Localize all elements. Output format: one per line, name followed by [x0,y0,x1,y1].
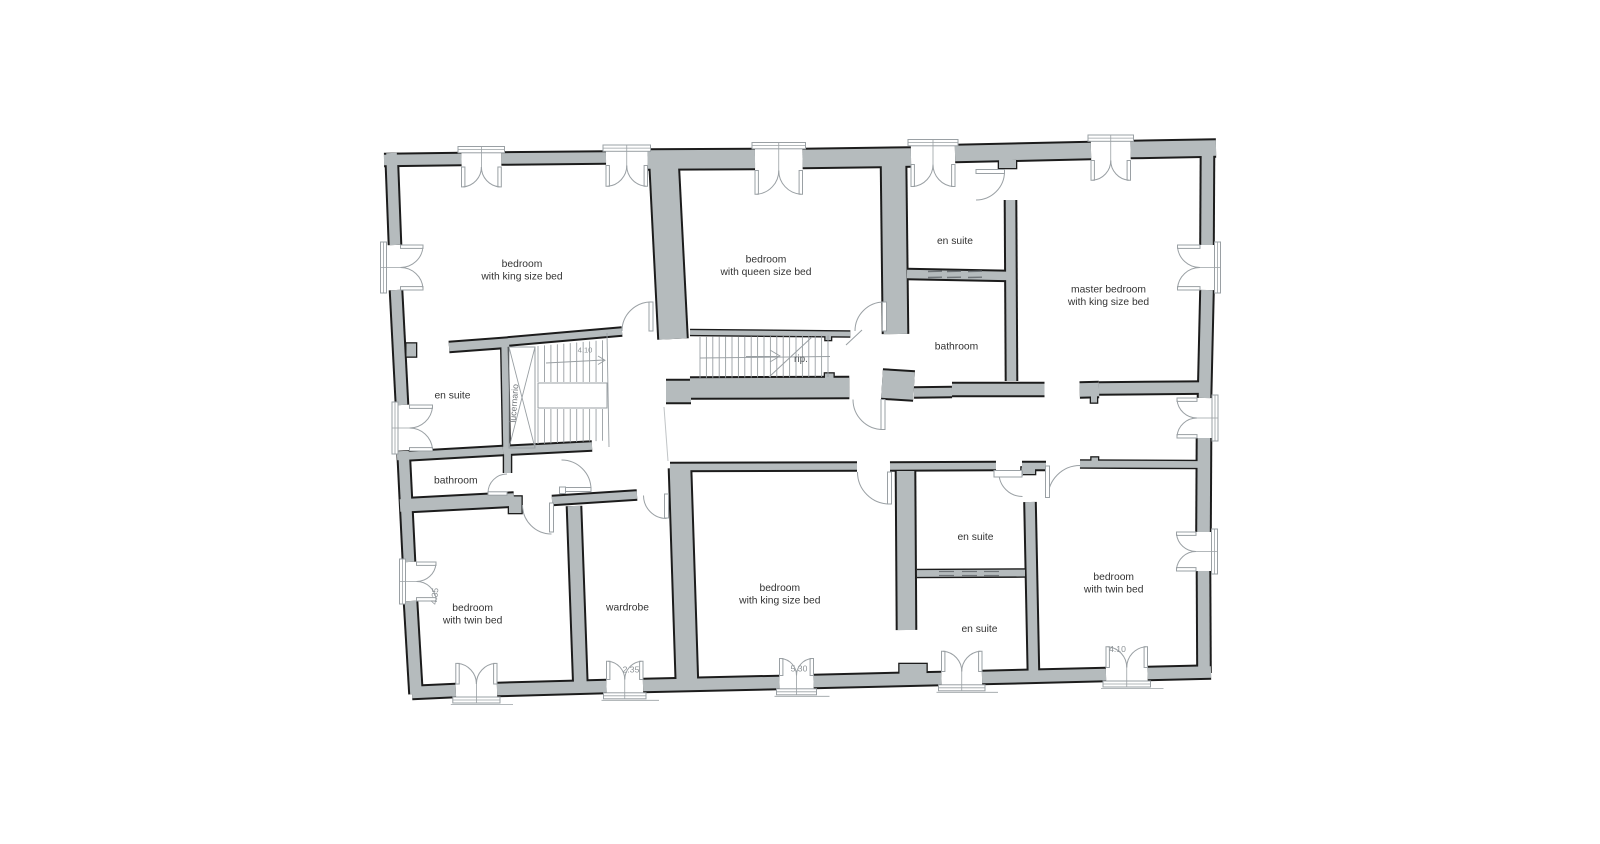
svg-text:with king size bed: with king size bed [480,272,563,283]
svg-text:en suite: en suite [957,532,993,543]
svg-text:bedroom: bedroom [746,255,787,266]
svg-text:en suite: en suite [961,624,997,635]
svg-text:with king size bed: with king size bed [738,596,821,607]
svg-text:bedroom: bedroom [759,583,800,594]
svg-text:bedroom: bedroom [452,603,493,614]
svg-text:en suite: en suite [434,391,470,402]
svg-text:rip.: rip. [794,354,808,365]
svg-text:bedroom: bedroom [1093,572,1134,583]
svg-text:4.10: 4.10 [578,346,593,355]
svg-text:4.10: 4.10 [1109,644,1126,654]
svg-text:4.35: 4.35 [429,587,441,605]
svg-text:bedroom: bedroom [502,259,543,270]
svg-text:en suite: en suite [937,236,973,247]
svg-text:with king size bed: with king size bed [1067,297,1150,308]
svg-text:bathroom: bathroom [935,342,979,353]
svg-text:bathroom: bathroom [434,476,478,487]
svg-text:master bedroom: master bedroom [1071,285,1146,296]
svg-text:with twin bed: with twin bed [442,616,503,627]
svg-text:with queen size bed: with queen size bed [719,267,811,278]
svg-text:wardrobe: wardrobe [605,603,649,614]
svg-text:with twin bed: with twin bed [1083,585,1144,596]
svg-text:5.30: 5.30 [791,664,808,674]
svg-text:2.35: 2.35 [623,665,640,675]
